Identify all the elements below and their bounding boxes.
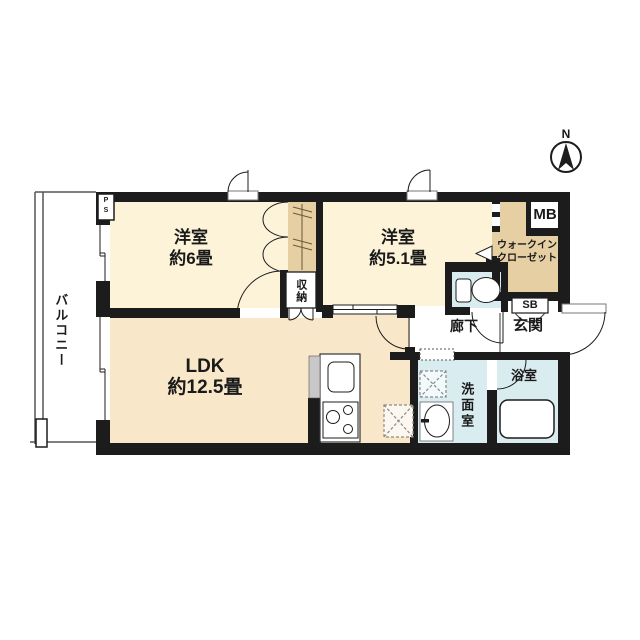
balcony-partition — [36, 419, 47, 447]
top-door-leaf-1 — [228, 191, 258, 200]
top-door-leaf-2 — [407, 191, 437, 200]
washing-machine-space — [420, 371, 446, 397]
bedroom1-label: 洋室 約6畳 — [131, 227, 251, 270]
washroom-label: 洗面室 — [458, 368, 474, 444]
meter-box-label: MB — [528, 206, 562, 225]
ps-letter-p: P — [98, 196, 114, 206]
entrance-door-arc — [562, 312, 605, 355]
floor-plan: 洋室 約6畳 洋室 約5.1畳 LDK 約12.5畳 バルコニー 収納 ウォーク… — [0, 0, 640, 640]
windows — [96, 225, 110, 420]
counter-end-panel — [309, 356, 320, 398]
compass-north-label: N — [551, 127, 581, 142]
ps-letter-s: S — [98, 206, 114, 216]
toilet-icon — [456, 278, 500, 303]
bathroom-label: 浴室 — [493, 368, 555, 384]
kitchen-sink-icon — [328, 362, 354, 392]
storage-label: 収納 — [293, 276, 307, 306]
bathtub-icon — [500, 400, 554, 438]
wic-label: ウォークイン クローゼット — [482, 240, 572, 265]
bedroom1-size: 約6畳 — [131, 248, 251, 269]
ldk-label: LDK 約12.5畳 — [125, 357, 285, 399]
bedroom2-name: 洋室 — [338, 227, 458, 248]
wic-label-line1: ウォークイン — [482, 240, 572, 253]
bedroom1-name: 洋室 — [131, 227, 251, 248]
pipe-space-label: P S — [98, 196, 114, 216]
compass-icon — [551, 142, 581, 172]
refrigerator-space — [384, 405, 413, 437]
entrance-door-leaf — [562, 304, 606, 313]
wic-niche-tick — [492, 212, 500, 217]
washroom-door — [420, 349, 454, 360]
hallway-label: 廊下 — [434, 318, 494, 336]
washbasin-icon — [420, 402, 453, 441]
shoe-box-label: SB — [512, 299, 548, 313]
bedroom2-size: 約5.1畳 — [338, 248, 458, 269]
ldk-size: 約12.5畳 — [125, 378, 285, 399]
ldk-name: LDK — [125, 357, 285, 378]
entrance-label: 玄関 — [498, 317, 558, 336]
wic-label-line2: クローゼット — [482, 253, 572, 266]
balcony-label: バルコニー — [52, 280, 68, 380]
bedroom2-label: 洋室 約5.1畳 — [338, 227, 458, 270]
